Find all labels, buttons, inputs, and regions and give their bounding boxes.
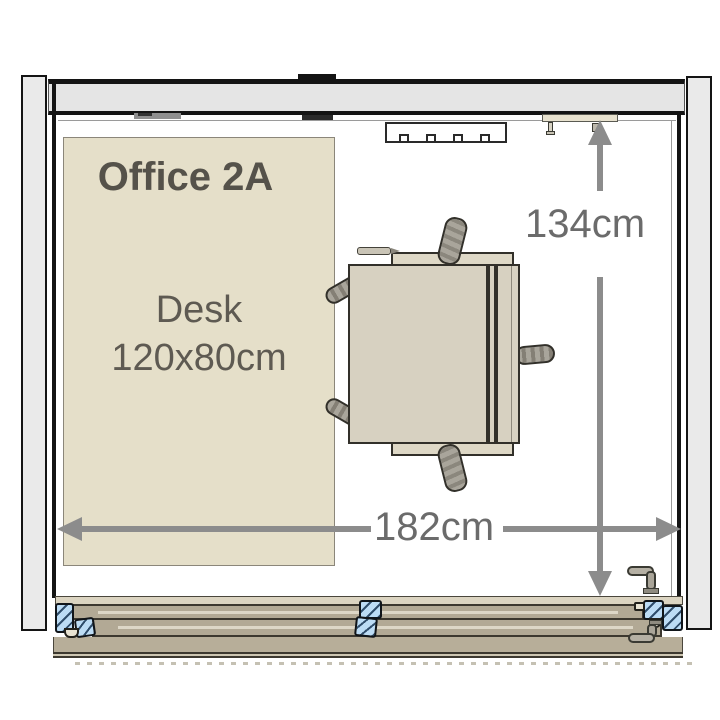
width-dimension-label: 182cm (368, 505, 500, 549)
pen-on-desk-icon (357, 247, 391, 255)
right-pillar (686, 76, 712, 630)
top-wall (48, 79, 685, 115)
door-shadow-dotted-line (75, 662, 695, 665)
floor-plan-canvas: Office 2A Desk 120x80cm 134cm 182cm (0, 0, 720, 720)
wall-tab-inner-gray-mark (138, 113, 152, 116)
door-handle-outside-base (649, 620, 662, 625)
frame-keeper-right-top (634, 602, 645, 611)
wall-tab-top (298, 74, 336, 80)
vent-notch (453, 134, 463, 141)
desk-top (348, 264, 520, 444)
desk-size-label: 120x80cm (67, 336, 331, 380)
width-dimension-arrowhead-right (656, 517, 681, 541)
desk-edge-thin-line (511, 266, 512, 442)
sliding-door-bottom-edge (53, 652, 683, 658)
chair-caster-right-icon (514, 343, 556, 365)
left-wall-inner-line (52, 84, 56, 598)
depth-dimension-shaft-upper (597, 143, 603, 191)
vent-notch (480, 134, 490, 141)
left-pillar (21, 75, 47, 631)
vent-notch (426, 134, 436, 141)
chair-backrest-line (494, 266, 498, 442)
width-dimension-shaft-left (80, 526, 371, 532)
desk-label: Desk (67, 288, 331, 332)
rail-pin-foot (546, 131, 555, 135)
depth-dimension-arrowhead-up (588, 120, 612, 145)
door-handle-outside-icon (628, 633, 655, 643)
vent-notch (399, 134, 409, 141)
width-dimension-arrowhead-left (57, 517, 82, 541)
wall-vent-icon (385, 122, 507, 143)
width-dimension-shaft-right (503, 526, 658, 532)
room-label: Office 2A (78, 155, 293, 199)
door-handle-inside-base (643, 588, 659, 594)
depth-dimension-label: 134cm (520, 202, 650, 246)
chair-backrest-line (486, 266, 490, 442)
depth-dimension-arrowhead-down (588, 571, 612, 596)
frame-keeper-left (64, 628, 79, 638)
frame-profile-right-inner (643, 600, 664, 620)
frame-profile-middle-lower (354, 616, 378, 638)
sliding-door-bottom-band (53, 637, 683, 652)
frame-profile-right-outer (662, 605, 683, 631)
glass-line (98, 611, 618, 614)
wall-tab-inner-dark (302, 115, 333, 120)
